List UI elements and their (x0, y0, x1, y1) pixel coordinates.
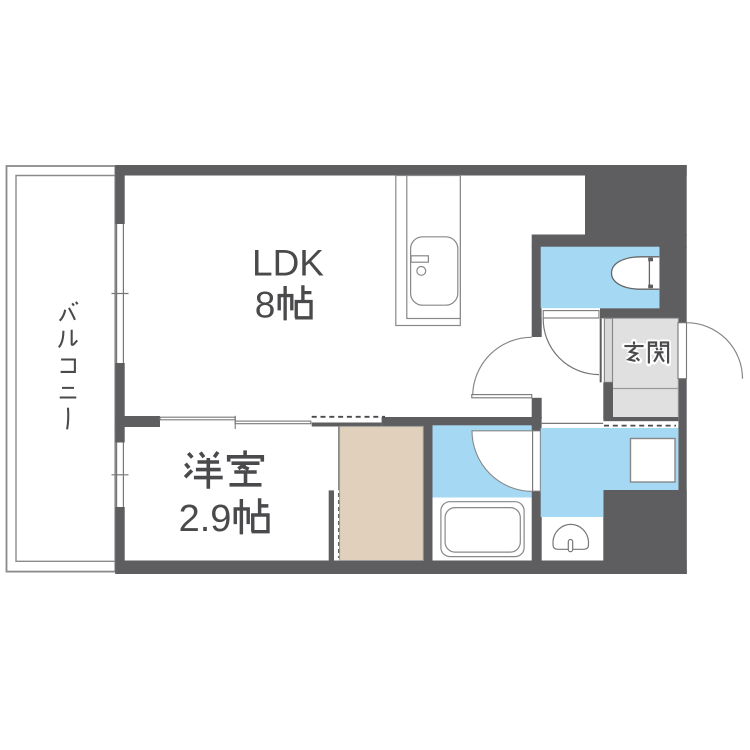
svg-text:2.9: 2.9 (179, 498, 232, 540)
svg-text:8: 8 (255, 285, 276, 326)
svg-text:LDK: LDK (252, 243, 324, 284)
